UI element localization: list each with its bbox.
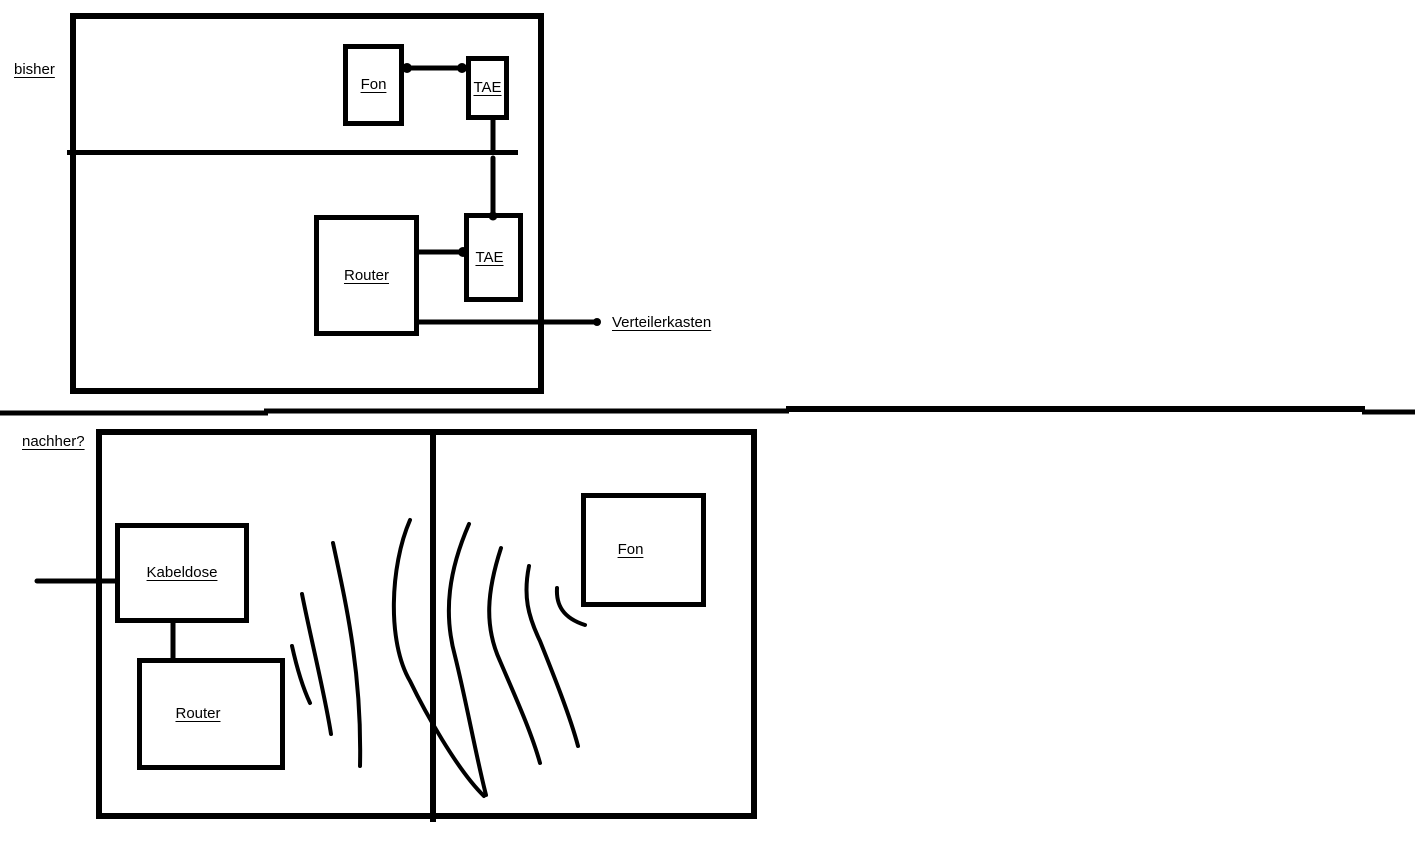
paint-canvas: bisher Fon TAE Router TAE Verteilerkaste…	[0, 0, 1415, 865]
kabeldose-box: Kabeldose	[115, 523, 249, 623]
tae-lower-box-label: TAE	[475, 249, 503, 266]
tae-upper-box: TAE	[466, 56, 509, 120]
fon-lower-box: Fon	[581, 493, 706, 607]
after-section-label: nachher?	[22, 433, 85, 450]
fon-lower-box-label: Fon	[618, 541, 644, 558]
tae-lower-box: TAE	[464, 213, 523, 302]
kabeldose-box-label: Kabeldose	[147, 564, 218, 581]
router-upper-box: Router	[314, 215, 419, 336]
router-lower-box: Router	[137, 658, 285, 770]
before-section-label: bisher	[14, 61, 55, 78]
fon-upper-box-label: Fon	[361, 76, 387, 93]
verteilerkasten-label: Verteilerkasten	[612, 314, 711, 331]
floor-divider-line	[67, 150, 518, 155]
tae-upper-box-label: TAE	[473, 79, 501, 96]
section-separator-line	[0, 409, 1415, 413]
fon-upper-box: Fon	[343, 44, 404, 126]
room-divider-wall	[430, 429, 436, 822]
router-lower-box-label: Router	[175, 705, 220, 722]
router-upper-box-label: Router	[344, 267, 389, 284]
